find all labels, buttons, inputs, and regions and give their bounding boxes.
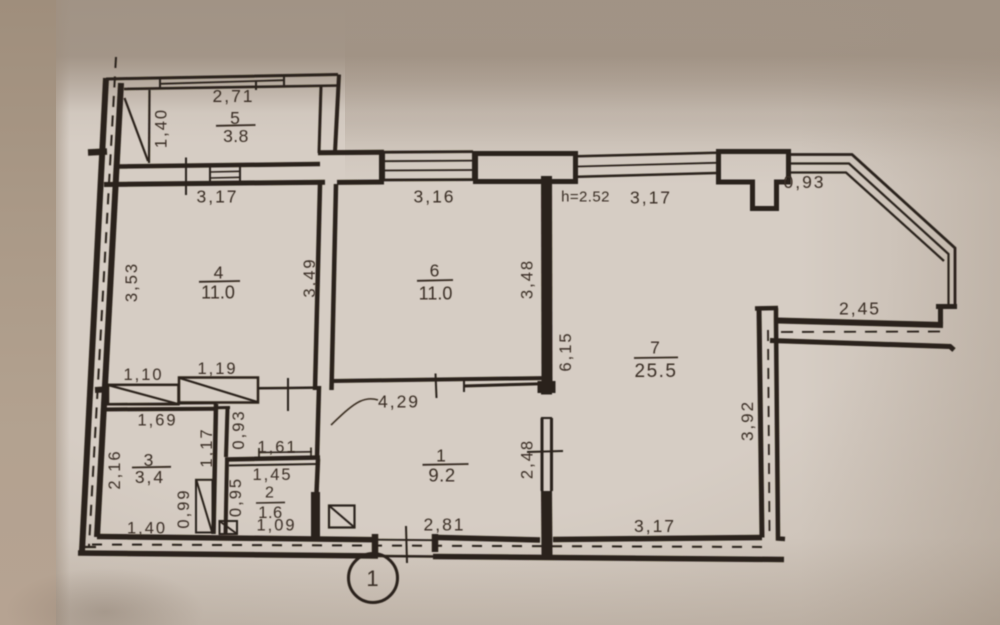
svg-text:11.0: 11.0 [419, 284, 453, 304]
svg-text:3,48: 3,48 [519, 259, 537, 299]
svg-text:2,71: 2,71 [212, 86, 254, 106]
svg-text:3,53: 3,53 [123, 262, 141, 302]
svg-text:2: 2 [265, 485, 274, 502]
svg-text:2,81: 2,81 [423, 515, 465, 535]
svg-text:11.0: 11.0 [201, 283, 235, 303]
svg-text:1,17: 1,17 [198, 427, 216, 467]
svg-text:h=2.52: h=2.52 [561, 189, 610, 206]
svg-text:2,45: 2,45 [839, 299, 881, 319]
svg-text:25.5: 25.5 [635, 361, 678, 382]
svg-text:4: 4 [214, 263, 224, 283]
svg-text:1,09: 1,09 [256, 517, 296, 535]
svg-text:3,17: 3,17 [196, 187, 238, 207]
svg-text:1,10: 1,10 [123, 366, 163, 384]
svg-text:1,19: 1,19 [197, 360, 237, 378]
svg-text:0,99: 0,99 [175, 488, 193, 528]
svg-text:3,17: 3,17 [634, 516, 676, 536]
svg-text:1,40: 1,40 [153, 108, 171, 148]
svg-text:4,29: 4,29 [378, 392, 420, 412]
svg-text:3,92: 3,92 [738, 400, 757, 441]
svg-text:1,61: 1,61 [257, 439, 297, 457]
svg-text:0,95: 0,95 [227, 477, 245, 517]
svg-text:1: 1 [366, 566, 378, 591]
svg-text:1,69: 1,69 [137, 412, 177, 430]
svg-text:1,45: 1,45 [252, 466, 292, 484]
svg-text:0,93: 0,93 [783, 172, 825, 192]
svg-text:3,17: 3,17 [630, 188, 672, 208]
svg-text:2,16: 2,16 [106, 449, 124, 489]
svg-text:6: 6 [430, 261, 440, 281]
svg-text:2,48: 2,48 [519, 439, 537, 479]
svg-text:3,4: 3,4 [135, 467, 165, 487]
svg-text:3,49: 3,49 [301, 257, 319, 297]
svg-text:6,15: 6,15 [557, 331, 575, 371]
svg-text:9.2: 9.2 [428, 465, 455, 486]
svg-text:3.8: 3.8 [223, 126, 249, 146]
svg-text:3,16: 3,16 [413, 187, 455, 207]
svg-text:1: 1 [436, 446, 446, 466]
svg-text:7: 7 [650, 338, 660, 358]
svg-text:1,40: 1,40 [127, 520, 167, 538]
svg-text:0,93: 0,93 [230, 409, 248, 449]
